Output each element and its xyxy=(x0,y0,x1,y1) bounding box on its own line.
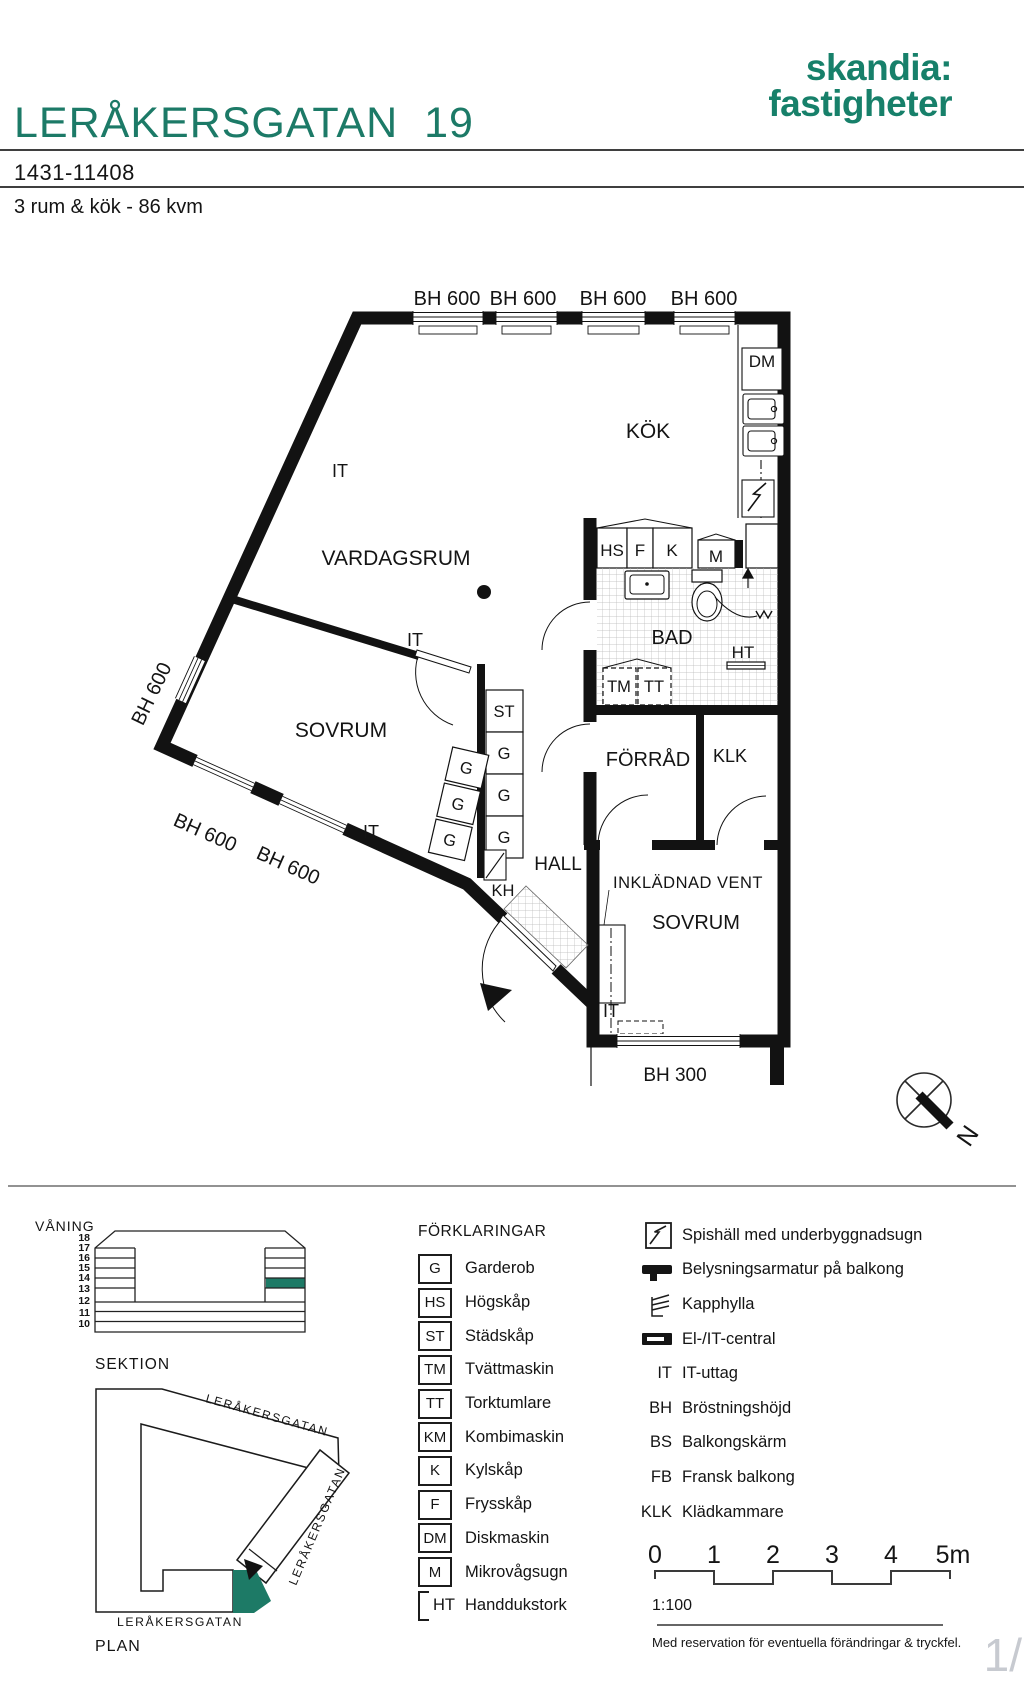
floor-numbers: 18 17 16 15 14 13 12 11 10 xyxy=(78,1232,90,1330)
legend-item: HS Högskåp xyxy=(418,1286,568,1320)
room-label-forrad: FÖRRÅD xyxy=(606,748,690,771)
wardrobe-label-st: ST xyxy=(493,703,514,721)
legend-item-label: Mikrovågsugn xyxy=(465,1563,568,1582)
building-section xyxy=(95,1231,305,1332)
bh600-label: BH 600 xyxy=(671,288,738,310)
north-label: N xyxy=(951,1121,984,1152)
legend-symbol-label: Spishäll med underbyggnadsugn xyxy=(682,1226,922,1245)
balcony-light-icon xyxy=(642,1265,672,1274)
legend-item: KM Kombimaskin xyxy=(418,1420,568,1454)
scale-tick: 4 xyxy=(884,1541,898,1569)
cabinet-label-k: K xyxy=(666,541,678,560)
legend-symbol-label: Klädkammare xyxy=(682,1503,784,1522)
legend-item-ht: HT Handdukstork xyxy=(418,1589,568,1623)
fixture-label-ht: HT xyxy=(732,643,755,662)
legend-symbol-abbr: KLK xyxy=(628,1503,682,1522)
el-central-icon xyxy=(642,1333,672,1345)
fixture-label-tt: TT xyxy=(644,678,664,696)
bh300-label: BH 300 xyxy=(643,1065,706,1086)
legend-item-abbr: HT xyxy=(433,1596,455,1615)
toilet-tank xyxy=(692,570,722,582)
legend-symbol-item: Belysningsarmatur på balkong xyxy=(628,1253,922,1288)
compass-needle xyxy=(919,1095,950,1126)
floor-number: 12 xyxy=(78,1295,90,1307)
column-dot xyxy=(477,585,491,599)
legend-symbol-abbr: FB xyxy=(628,1468,682,1487)
floor-number: 10 xyxy=(78,1318,90,1330)
legend-symbol-box: ST xyxy=(418,1321,452,1351)
legend-item-label: Städskåp xyxy=(465,1327,534,1346)
scale-numbers: 0 1 2 3 4 5m xyxy=(648,1541,970,1569)
legend-symbol-box: KM xyxy=(418,1422,452,1452)
legend-item-label: Diskmaskin xyxy=(465,1529,549,1548)
legend-symbol-item: KLK Klädkammare xyxy=(628,1495,922,1530)
bh600-label: BH 600 xyxy=(490,288,557,310)
wardrobe-label-g: G xyxy=(498,829,511,847)
legend-symbol-item: Spishäll med underbyggnadsugn xyxy=(628,1218,922,1253)
legend-symbol-abbr: IT xyxy=(628,1364,682,1383)
legend-symbol-abbr: BH xyxy=(628,1399,682,1418)
legend-symbol-item: El-/IT-central xyxy=(628,1322,922,1357)
room-label-sovrum: SOVRUM xyxy=(295,719,387,742)
it-label: IT xyxy=(332,461,348,481)
legend-item-label: Kylskåp xyxy=(465,1461,523,1480)
scale-tick: 5m xyxy=(936,1541,971,1569)
legend-symbol-box: TT xyxy=(418,1389,452,1419)
legend-symbol-box: G xyxy=(418,1254,452,1284)
scale-tick: 0 xyxy=(648,1541,662,1569)
legend-symbol-item: Kapphylla xyxy=(628,1287,922,1322)
legend-item: G Garderob xyxy=(418,1252,568,1286)
room-label-hall: HALL xyxy=(534,854,582,875)
legend-abbreviations: G Garderob HS Högskåp ST Städskåp TM Tvä… xyxy=(418,1252,568,1623)
scale-tick: 2 xyxy=(766,1541,780,1569)
legend-item: TT Torktumlare xyxy=(418,1387,568,1421)
disclaimer: Med reservation för eventuella förändrin… xyxy=(652,1635,961,1650)
it-label: IT xyxy=(407,630,423,650)
legend-symbol-label: El-/IT-central xyxy=(682,1330,776,1349)
fixture-label-tm: TM xyxy=(607,678,631,696)
cabinet-label-f: F xyxy=(635,541,645,560)
room-label-kok: KÖK xyxy=(626,420,670,443)
room-label-klk: KLK xyxy=(713,746,747,766)
scale-tick: 1 xyxy=(707,1541,721,1569)
towel-warmer xyxy=(727,662,765,669)
legend-title: FÖRKLARINGAR xyxy=(418,1223,546,1241)
stove-icon xyxy=(645,1222,672,1249)
room-label-bad: BAD xyxy=(651,627,692,649)
legend-symbol-abbr: BS xyxy=(628,1433,682,1452)
cabinet-label-m: M xyxy=(709,547,723,566)
legend-symbol-label: Balkongskärm xyxy=(682,1433,787,1452)
toilet-bowl xyxy=(692,583,722,621)
floor-number: 13 xyxy=(78,1283,90,1295)
room-label-sovrum2: SOVRUM xyxy=(652,912,740,934)
legend-symbol-box: K xyxy=(418,1456,452,1486)
legend-symbol-item: BH Bröstningshöjd xyxy=(628,1391,922,1426)
scale-tick: 3 xyxy=(825,1541,839,1569)
site-plan: LERÅKERSGATAN LERÅKERSGATAN LERÅKERSGATA… xyxy=(96,1389,349,1629)
room-label-vardagsrum: VARDAGSRUM xyxy=(322,547,471,570)
legend-item-label: Högskåp xyxy=(465,1293,530,1312)
legend-symbol-box: M xyxy=(418,1557,452,1587)
legend-item-label: Torktumlare xyxy=(465,1394,551,1413)
label-kh: KH xyxy=(492,882,515,900)
coat-shelf xyxy=(484,850,506,880)
legend-symbol-box: TM xyxy=(418,1355,452,1385)
legend-symbol-label: Belysningsarmatur på balkong xyxy=(682,1260,904,1279)
bh600-label: BH 600 xyxy=(253,842,323,889)
legend-item: TM Tvättmaskin xyxy=(418,1353,568,1387)
cabinet-label-hs: HS xyxy=(600,541,624,560)
legend-item: F Frysskåp xyxy=(418,1488,568,1522)
legend-symbol-box: HS xyxy=(418,1288,452,1318)
section-caption: SEKTION xyxy=(95,1356,170,1373)
towel-warmer-bracket-icon xyxy=(418,1591,429,1621)
page-number-fragment: 1/ xyxy=(984,1628,1022,1682)
legend-item-label: Garderob xyxy=(465,1259,535,1278)
legend-symbol-box: DM xyxy=(418,1523,452,1553)
bh600-label: BH 600 xyxy=(170,809,240,856)
legend-item: K Kylskåp xyxy=(418,1454,568,1488)
legend-symbol-label: IT-uttag xyxy=(682,1364,738,1383)
bh600-label: BH 600 xyxy=(414,288,481,310)
wardrobe-label-g: G xyxy=(498,745,511,763)
legend-item: M Mikrovågsugn xyxy=(418,1555,568,1589)
wardrobe-label-g: G xyxy=(498,787,511,805)
street-label: LERÅKERSGATAN xyxy=(117,1614,243,1629)
legend-symbol-label: Bröstningshöjd xyxy=(682,1399,791,1418)
it-label: IT xyxy=(603,1001,619,1021)
legend-item-label: Handdukstork xyxy=(465,1596,567,1615)
scale-ratio: 1:100 xyxy=(652,1597,692,1614)
bh600-label: BH 600 xyxy=(580,288,647,310)
legend-item-label: Frysskåp xyxy=(465,1495,532,1514)
legend-item-label: Kombimaskin xyxy=(465,1428,564,1447)
coat-rack-icon xyxy=(646,1291,672,1318)
legend-item: ST Städskåp xyxy=(418,1319,568,1353)
legend-item-label: Tvättmaskin xyxy=(465,1360,554,1379)
legend-symbol-label: Kapphylla xyxy=(682,1295,754,1314)
entrance-arrow-icon xyxy=(480,983,512,1011)
highlighted-floor xyxy=(266,1279,305,1289)
legend-symbol-item: IT IT-uttag xyxy=(628,1356,922,1391)
it-label: IT xyxy=(363,822,379,842)
window-sovrum2 xyxy=(617,1034,740,1048)
legend-symbol-item: BS Balkongskärm xyxy=(628,1426,922,1461)
scale-bar: 0 1 2 3 4 5m 1:100 xyxy=(648,1541,970,1614)
fixture-label-dm: DM xyxy=(749,352,775,371)
legend-symbol-box: F xyxy=(418,1490,452,1520)
legend-symbol-item: FB Fransk balkong xyxy=(628,1460,922,1495)
legend-symbols: Spishäll med underbyggnadsugn Belysnings… xyxy=(628,1218,922,1529)
compass: N xyxy=(897,1073,985,1151)
label-inkladnad-vent: INKLÄDNAD VENT xyxy=(613,874,763,892)
legend-symbol-label: Fransk balkong xyxy=(682,1468,795,1487)
site-caption: PLAN xyxy=(95,1638,141,1655)
legend-item: DM Diskmaskin xyxy=(418,1522,568,1556)
